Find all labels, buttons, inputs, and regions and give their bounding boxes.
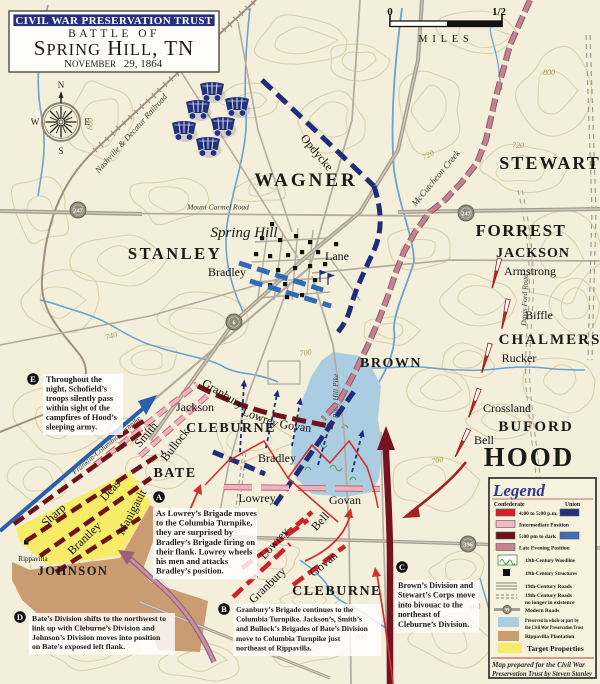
svg-text:Rippavilla: Rippavilla <box>18 555 48 563</box>
svg-text:Bradley’s Brigade firing on: Bradley’s Brigade firing on <box>156 537 255 547</box>
svg-text:B: B <box>221 604 227 614</box>
svg-text:720: 720 <box>512 141 524 150</box>
svg-text:Late Evening Position: Late Evening Position <box>519 546 570 552</box>
svg-text:STANLEY: STANLEY <box>128 244 222 263</box>
svg-text:W: W <box>31 117 40 127</box>
svg-text:E: E <box>30 374 36 384</box>
svg-text:CLEBURNE: CLEBURNE <box>292 584 382 599</box>
svg-text:A: A <box>156 492 163 502</box>
svg-text:Biffle: Biffle <box>525 308 553 322</box>
svg-text:link up with Cleburne’s Divisi: link up with Cleburne’s Division and <box>32 623 155 632</box>
svg-text:his men and attacks: his men and attacks <box>156 556 229 566</box>
svg-text:Preservation Trust by Steven S: Preservation Trust by Steven Stanley <box>492 670 593 678</box>
svg-text:5:00 pm to dark: 5:00 pm to dark <box>519 534 556 540</box>
svg-text:to the Columbia Turnpike,: to the Columbia Turnpike, <box>156 518 252 528</box>
svg-text:they are surprised by: they are surprised by <box>156 527 234 537</box>
svg-text:6: 6 <box>232 320 235 327</box>
svg-text:into bivouac to the: into bivouac to the <box>398 600 463 609</box>
svg-text:Union: Union <box>565 502 581 508</box>
svg-text:Bradley: Bradley <box>258 451 296 465</box>
svg-text:N: N <box>58 80 65 90</box>
svg-text:Legend: Legend <box>492 481 545 500</box>
svg-text:MILES: MILES <box>419 34 474 45</box>
svg-text:their flank. Lowrey wheels: their flank. Lowrey wheels <box>156 546 253 556</box>
svg-text:Cleburne’s Division.: Cleburne’s Division. <box>398 620 469 629</box>
svg-text:sleeping army.: sleeping army. <box>46 423 97 432</box>
svg-text:Intermediate Position: Intermediate Position <box>519 523 569 529</box>
svg-text:Rucker: Rucker <box>502 351 537 365</box>
svg-text:move to Columbia Turnpike just: move to Columbia Turnpike just <box>236 634 341 643</box>
svg-text:Spring Hill: Spring Hill <box>210 225 277 241</box>
svg-text:Modern Roads: Modern Roads <box>525 608 559 614</box>
svg-text:Mount Carmel Road: Mount Carmel Road <box>186 203 249 212</box>
svg-text:northeast of: northeast of <box>398 610 440 619</box>
svg-text:D: D <box>17 612 23 622</box>
svg-text:Granbury’s Brigade continues t: Granbury’s Brigade continues to the <box>236 605 354 614</box>
svg-text:night, Schofield’s: night, Schofield’s <box>46 385 108 394</box>
svg-text:JOHNSON: JOHNSON <box>38 564 109 578</box>
svg-text:247: 247 <box>461 211 470 218</box>
svg-text:no longer in existence: no longer in existence <box>525 600 575 606</box>
svg-text:BROWN: BROWN <box>360 356 422 371</box>
svg-text:Lane: Lane <box>325 249 349 263</box>
svg-text:Johnson’s Division moves into: Johnson’s Division moves into position <box>32 633 161 642</box>
svg-text:0: 0 <box>387 6 393 18</box>
svg-text:396: 396 <box>463 542 472 549</box>
svg-text:northeast of Rippavilla.: northeast of Rippavilla. <box>236 643 312 652</box>
svg-text:NOVEMBER: NOVEMBER <box>64 58 116 70</box>
svg-text:Govan: Govan <box>329 493 361 507</box>
svg-text:Stewart’s Corps move: Stewart’s Corps move <box>398 591 475 600</box>
svg-text:SPRING HILL, TN: SPRING HILL, TN <box>34 36 194 60</box>
svg-text:29, 1864: 29, 1864 <box>124 58 163 70</box>
svg-text:STEWART: STEWART <box>499 153 600 173</box>
svg-text:CHALMERS: CHALMERS <box>499 332 600 348</box>
svg-text:BATE: BATE <box>153 466 196 481</box>
svg-text:E: E <box>84 117 90 127</box>
svg-text:19th-Century Structures: 19th-Century Structures <box>525 571 577 577</box>
svg-text:within sight of the: within sight of the <box>46 404 110 413</box>
svg-text:As Lowrey’s Brigade moves: As Lowrey’s Brigade moves <box>156 508 258 518</box>
svg-text:Bradley’s position.: Bradley’s position. <box>156 566 224 576</box>
svg-text:Map prepared for the Civil War: Map prepared for the Civil War <box>491 661 585 669</box>
svg-text:HOOD: HOOD <box>484 442 575 472</box>
svg-text:CIVIL WAR PRESERVATION TRUST: CIVIL WAR PRESERVATION TRUST <box>15 15 213 27</box>
svg-text:247: 247 <box>73 208 82 215</box>
svg-text:and Bullock’s Brigades of Bate: and Bullock’s Brigades of Bate’s Divisio… <box>236 624 369 633</box>
svg-text:on Bate’s exposed left flank.: on Bate’s exposed left flank. <box>32 642 125 651</box>
svg-text:Armstrong: Armstrong <box>504 264 556 278</box>
svg-text:Target Properties: Target Properties <box>527 644 584 653</box>
svg-text:C: C <box>399 562 405 572</box>
svg-text:FORREST: FORREST <box>476 221 567 240</box>
svg-text:Bate’s Division shifts to the: Bate’s Division shifts to the northwest … <box>32 614 166 623</box>
svg-text:campfires of Hood’s: campfires of Hood’s <box>46 413 118 422</box>
svg-text:700: 700 <box>299 347 312 358</box>
svg-text:Columbia Turnpike. Jackson’s,: Columbia Turnpike. Jackson’s, Smith’s <box>236 615 362 624</box>
svg-text:19th-Century Woodline: 19th-Century Woodline <box>525 558 576 564</box>
svg-text:WAGNER: WAGNER <box>254 170 358 191</box>
svg-text:Crossland: Crossland <box>483 401 531 415</box>
svg-text:99: 99 <box>505 609 510 614</box>
svg-text:Bradley: Bradley <box>208 265 246 279</box>
svg-text:Jackson: Jackson <box>176 400 214 414</box>
svg-text:Throughout the: Throughout the <box>46 375 102 384</box>
svg-text:troops silently pass: troops silently pass <box>46 394 114 403</box>
svg-text:S: S <box>58 146 63 156</box>
svg-text:Preserved in whole or part by: Preserved in whole or part by <box>525 618 579 624</box>
svg-text:Rippavilla Plantation: Rippavilla Plantation <box>525 634 574 640</box>
svg-text:Bell: Bell <box>474 433 495 447</box>
svg-text:Lowrey: Lowrey <box>238 491 275 505</box>
svg-text:Brown’s Division and: Brown’s Division and <box>398 581 474 590</box>
svg-text:19th-Century Roads: 19th-Century Roads <box>525 584 572 590</box>
svg-text:the Civil War Preservation Tru: the Civil War Preservation Trust <box>525 625 583 631</box>
svg-text:JACKSON: JACKSON <box>496 246 570 261</box>
svg-text:Confederate: Confederate <box>494 502 525 508</box>
svg-text:19th-Century Roads: 19th-Century Roads <box>525 593 572 599</box>
svg-text:BUFORD: BUFORD <box>498 419 573 435</box>
svg-text:800: 800 <box>543 68 555 77</box>
svg-text:1/2: 1/2 <box>492 6 507 18</box>
svg-text:4:00 to 5:00 p.m.: 4:00 to 5:00 p.m. <box>519 511 558 517</box>
